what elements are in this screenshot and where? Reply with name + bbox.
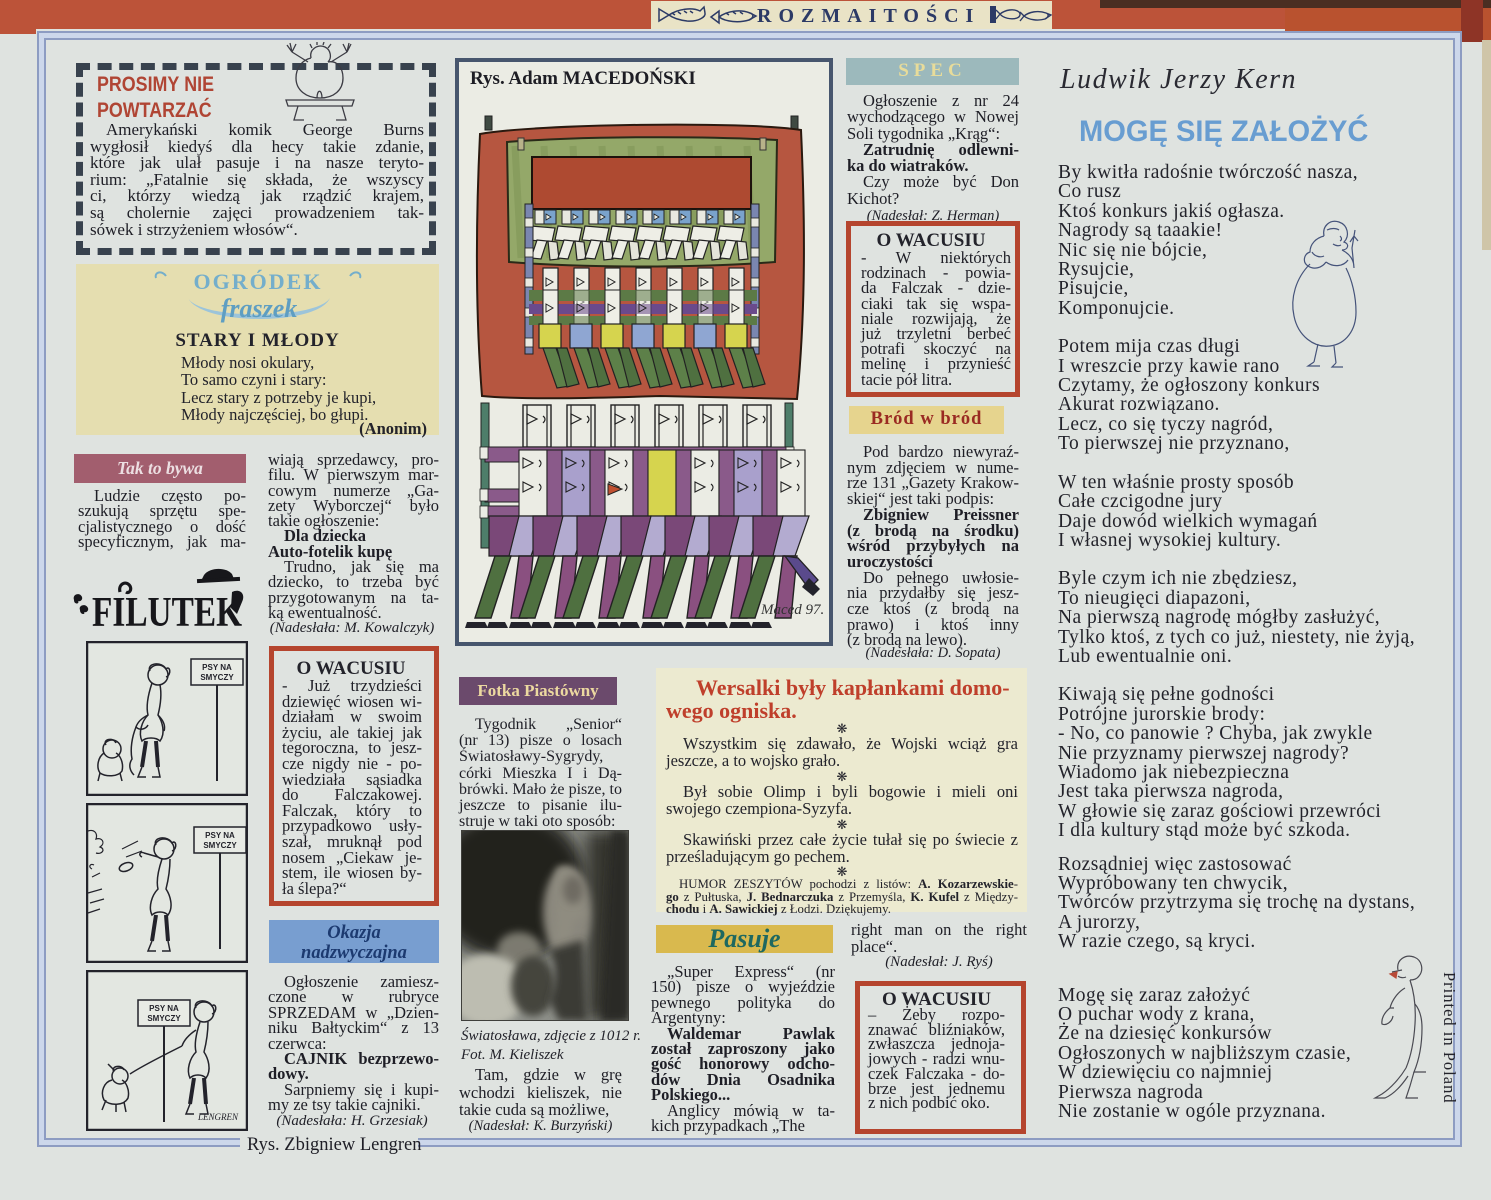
svg-text:PSY NA: PSY NA — [149, 1004, 179, 1013]
svg-text:fraszek: fraszek — [220, 294, 297, 323]
svg-text:SMYCZY: SMYCZY — [147, 1014, 181, 1023]
svg-text:OGRÓDEK: OGRÓDEK — [193, 269, 322, 294]
svg-text:PSY NA: PSY NA — [205, 831, 235, 840]
svg-text:SMYCZY: SMYCZY — [200, 673, 234, 682]
svg-text:LENGREN: LENGREN — [197, 1112, 239, 1122]
svg-text:Maced 97.: Maced 97. — [760, 602, 824, 618]
svg-text:PSY NA: PSY NA — [202, 663, 232, 672]
svg-text:SMYCZY: SMYCZY — [203, 841, 237, 850]
svg-text:FILUTEK: FILUTEK — [92, 590, 242, 636]
